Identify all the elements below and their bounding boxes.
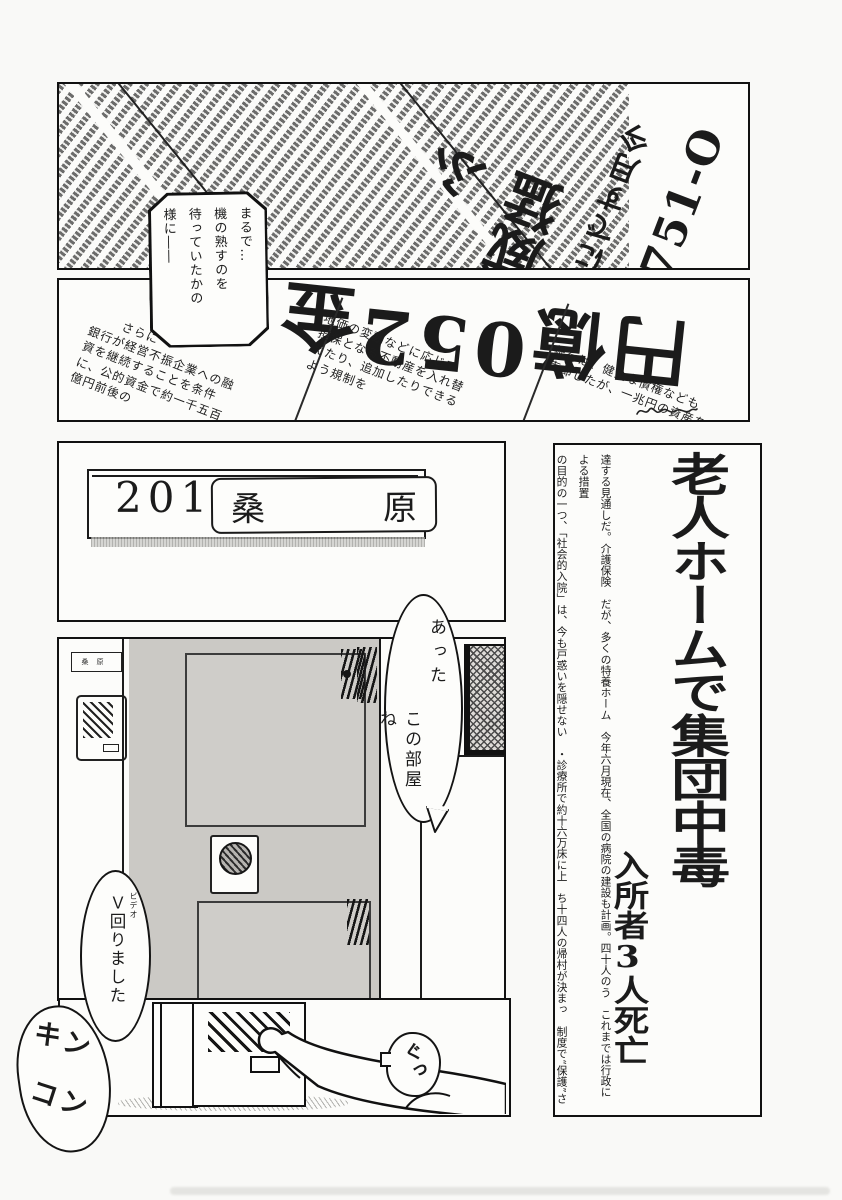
door-knob	[219, 842, 252, 875]
furigana-video: ビデオ	[128, 892, 139, 922]
signature-scribble	[635, 402, 699, 420]
intercom-speaker-grill	[83, 702, 113, 738]
speech-text-grunt: ぐっ	[397, 1039, 434, 1088]
speech-text-found-room: あった この部屋ね	[374, 618, 449, 808]
speech-line: 機の熟すのを	[206, 206, 234, 338]
manga-page: O-157 今月すでに4件 猛威ふ 金250億円 さらに 銀行が経営不振企業への…	[0, 0, 842, 1200]
door-lock-plate	[210, 835, 259, 894]
speech-bubble-tail	[424, 806, 450, 834]
name-kanji-right: 原	[383, 480, 417, 529]
speech-bubble-found-room: あった この部屋ね	[384, 594, 463, 823]
speech-bubble-waiting: まるで… 機の熟すのを 待っていたかの 様に――	[148, 191, 270, 348]
speech-text-waiting: まるで… 機の熟すのを 待っていたかの 様に――	[155, 206, 259, 340]
nameplate-shadow	[91, 537, 425, 547]
speech-line: 様に――	[155, 207, 183, 339]
speech-line: 待っていたかの	[180, 207, 208, 339]
speech-line: この部屋ね	[374, 618, 424, 808]
door-peephole	[343, 670, 351, 678]
door-nameplate: 201 桑 原	[87, 469, 426, 539]
name-frame: 桑 原	[211, 476, 437, 534]
mini-nameplate: 桑原	[71, 652, 122, 672]
hatched-wall-window	[464, 644, 506, 755]
speech-line: まるで…	[231, 206, 259, 338]
panel-nameplate: 201 桑 原	[57, 441, 506, 622]
hand-pressing-button	[256, 1026, 506, 1114]
door-inset-upper	[185, 653, 366, 827]
speech-text-video: Ｖ回りました	[104, 894, 128, 1024]
door-shade-wedge	[347, 899, 369, 945]
article-body-column: の目的の一つ、「社会的入院」は、今も戸惑いを隠せない ・診療所で約十六万床に上 …	[553, 454, 572, 1106]
scan-smudge	[170, 1187, 830, 1195]
intercom-button	[103, 744, 119, 752]
article-headline: 老人ホームで集団中毒	[665, 451, 727, 951]
speech-bubble-grunt: ぐっ	[386, 1032, 441, 1097]
intercom-unit	[76, 695, 127, 761]
speech-line: あった	[424, 618, 449, 808]
doorbell-side-edge	[160, 1004, 162, 1106]
name-kanji-left: 桑	[231, 481, 265, 530]
newspaper-article: 達する見通しだ。介護保険 だが、多くの特養ホーム 今年六月現在、全国の病院の建設…	[553, 443, 762, 1117]
sfx-text-kon: コン	[26, 1069, 97, 1125]
door	[129, 639, 381, 999]
article-subheadline: 入所者3人死亡	[608, 850, 647, 1105]
speech-bubble-video: Ｖ回りました ビデオ	[80, 870, 151, 1042]
speech-bubble-fill: まるで… 機の熟すのを 待っていたかの 様に――	[150, 194, 267, 346]
door-inset-lower	[197, 901, 371, 1001]
room-number: 201	[115, 473, 213, 522]
speech-bubble-nub	[380, 1052, 391, 1067]
